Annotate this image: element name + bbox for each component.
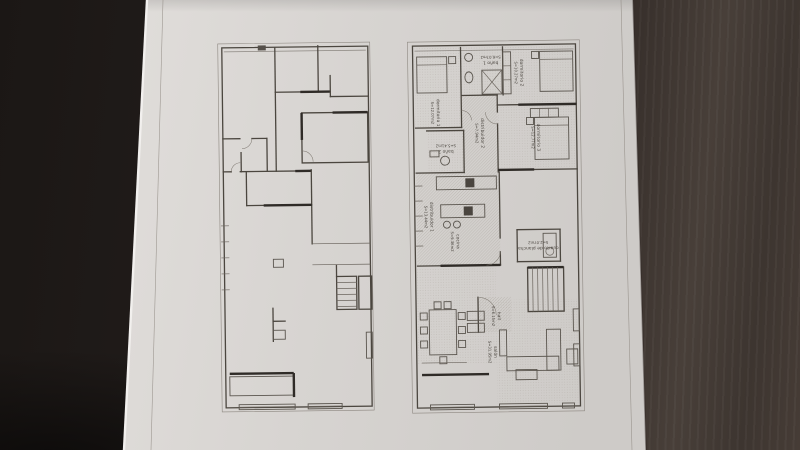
svg-text:S=13.44m2: S=13.44m2	[423, 206, 428, 229]
svg-text:S=9.36m2: S=9.36m2	[450, 231, 455, 252]
svg-text:S=12.77m2: S=12.77m2	[530, 126, 535, 149]
svg-text:S=12.07m2: S=12.07m2	[430, 102, 435, 125]
room-label-bano-2: baño 2 S=5.41m2	[435, 143, 456, 154]
svg-text:S=6.15m2: S=6.15m2	[491, 306, 496, 327]
wall-pier	[258, 45, 266, 50]
svg-text:S=5.41m2: S=5.41m2	[435, 143, 456, 148]
room-label-dormitorio-1: dormitorio 1 S=12.07m2	[430, 99, 441, 127]
svg-text:S=31.95m2: S=31.95m2	[487, 341, 492, 364]
svg-text:S=10.27m2: S=10.27m2	[513, 61, 518, 84]
floor-plan-sheet-photo: dormitorio 1 S=12.07m2 baño 1 S=6.07m2 d…	[0, 0, 800, 450]
svg-text:S=2.07m2: S=2.07m2	[528, 240, 549, 245]
room-label-dormitorio-3: dormitorio 3 S=12.77m2	[530, 124, 541, 152]
room-label-distribuidor-1: distribuidor 1 S=13.44m2	[423, 202, 434, 232]
paper-top-shadow	[147, 0, 633, 12]
svg-text:S=7.94m2: S=7.94m2	[474, 123, 479, 144]
room-label-bano-1: baño 1 S=6.07m2	[480, 55, 501, 66]
room-label-dormitorio-2: dormitorio 2 S=10.27m2	[513, 59, 524, 87]
photo-scene: dormitorio 1 S=12.07m2 baño 1 S=6.07m2 d…	[0, 0, 800, 450]
svg-text:S=6.07m2: S=6.07m2	[480, 55, 501, 60]
